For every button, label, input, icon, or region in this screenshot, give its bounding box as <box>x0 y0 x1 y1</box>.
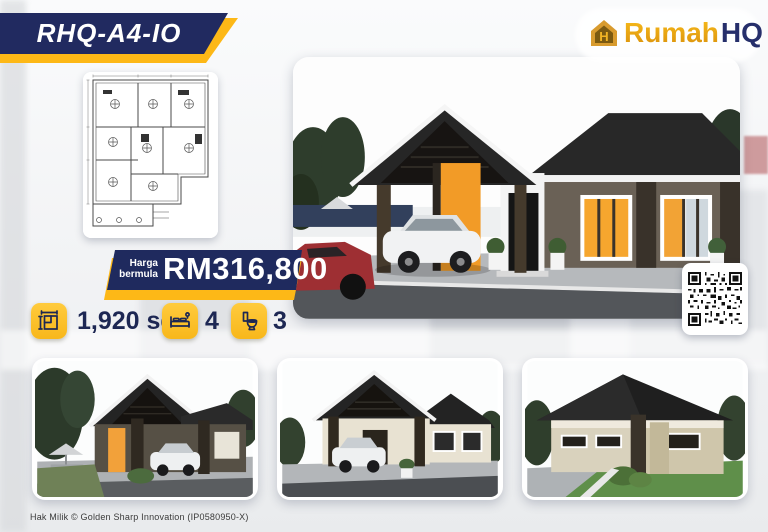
svg-text:H: H <box>599 29 608 44</box>
price-label-line2: bermula <box>104 269 158 280</box>
roof-fascia <box>520 175 740 182</box>
main-house-3d-render <box>293 57 740 319</box>
background-haze-left <box>0 0 26 532</box>
floor-plan-card <box>83 72 218 238</box>
background-red-wall <box>744 136 768 174</box>
floor-area-icon <box>31 303 67 339</box>
brand-logo: H RumahHQ <box>588 17 763 49</box>
house-render-angle-view <box>35 361 255 497</box>
floor-plan-line-drawing <box>83 72 218 238</box>
thumbnail-front-view <box>277 358 503 500</box>
price-label: Harga bermula <box>104 258 158 280</box>
copyright-text: Hak Milik © Golden Sharp Innovation (IP0… <box>30 512 249 522</box>
qr-pattern <box>688 272 742 326</box>
brand-name-primary: Rumah <box>624 17 719 49</box>
main-house-photo <box>293 57 740 319</box>
price-amount: RM316,800 <box>163 251 328 287</box>
house-monogram-icon: H <box>588 17 620 49</box>
carport-post-right <box>515 185 527 273</box>
brand-name-secondary: HQ <box>721 17 763 49</box>
wall-pillar-1 <box>636 182 656 268</box>
price-label-line1: Harga <box>104 258 158 269</box>
toilet-icon <box>231 303 267 339</box>
thumbnail-rear-view <box>522 358 748 500</box>
fence-left <box>293 205 413 227</box>
bed-icon <box>162 303 198 339</box>
flyer-page: RHQ-A4-IO H RumahHQ Harga bermula RM316,… <box>0 0 768 532</box>
qr-code <box>682 263 748 335</box>
model-badge-label: RHQ-A4-IO <box>16 18 202 49</box>
window-set-1 <box>580 195 632 261</box>
thumbnail-angle-view <box>32 358 258 500</box>
bedroom-count: 4 <box>205 307 219 336</box>
bathroom-count: 3 <box>273 307 287 336</box>
house-render-front-view <box>280 361 500 497</box>
house-render-rear-view <box>525 361 745 497</box>
window-set-2 <box>660 195 712 261</box>
